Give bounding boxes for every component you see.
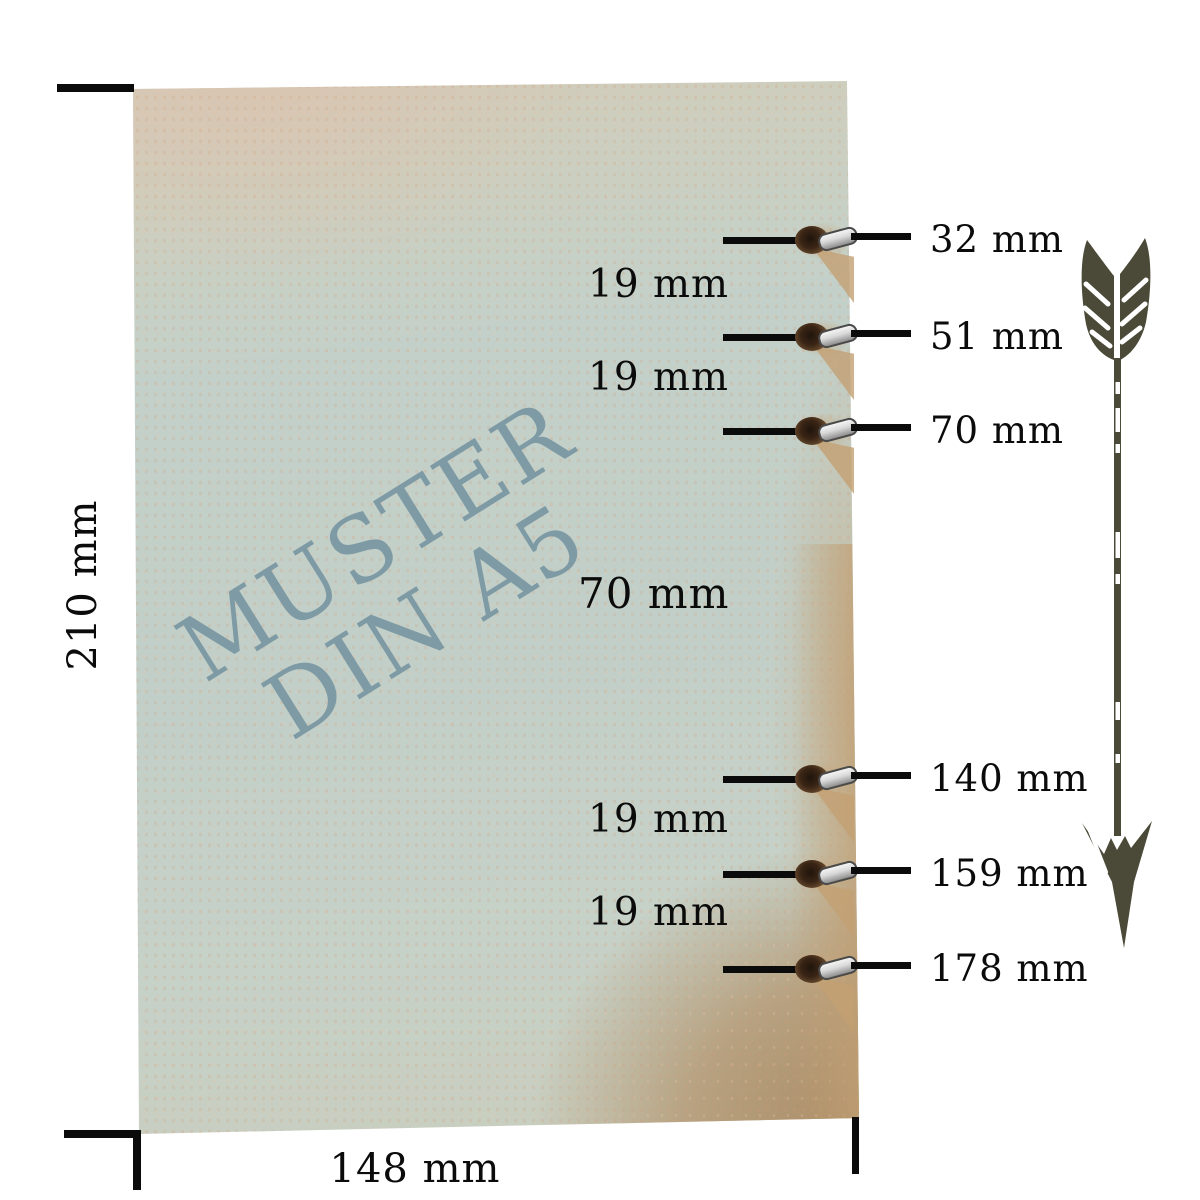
dimension-line-left	[723, 237, 801, 244]
dimension-line-right	[851, 233, 911, 240]
binding-hole-row: 178 mm	[0, 949, 1100, 989]
binding-hole-row: 70 mm	[0, 411, 1100, 451]
notebook-measurement-diagram: MUSTER DIN A5 210 mm 148 mm 32 mm 51 mm …	[0, 0, 1200, 1200]
dimension-line-left	[723, 966, 801, 973]
hole-spacing-label: 70 mm	[578, 568, 738, 620]
hole-spacing-label: 19 mm	[588, 887, 748, 939]
dimension-line-right	[851, 772, 911, 779]
top-left-corner-tick	[57, 84, 134, 92]
binding-hole-row: 51 mm	[0, 317, 1100, 357]
dimension-line-left	[723, 871, 801, 878]
dimension-line-right	[851, 330, 911, 337]
sheet-width-label: 148 mm	[300, 1143, 530, 1195]
dimension-line-right	[851, 962, 911, 969]
binding-hole-row: 140 mm	[0, 759, 1100, 799]
dimension-line-right	[851, 424, 911, 431]
sheet-height-label: 210 mm	[57, 475, 109, 695]
hole-distance-label: 32 mm	[930, 216, 1064, 264]
hole-spacing-label: 19 mm	[588, 794, 748, 846]
hole-distance-label: 51 mm	[930, 313, 1064, 361]
dimension-line-left	[723, 428, 801, 435]
bottom-left-corner-tick-vertical	[133, 1130, 141, 1190]
hole-distance-label: 70 mm	[930, 407, 1064, 455]
hole-spacing-label: 19 mm	[588, 259, 748, 311]
binding-hole-row: 159 mm	[0, 854, 1100, 894]
bottom-left-corner-tick-horizontal	[64, 1130, 140, 1138]
binding-hole-row: 32 mm	[0, 220, 1100, 260]
dimension-line-left	[723, 334, 801, 341]
dimension-line-right	[851, 867, 911, 874]
dimension-line-left	[723, 776, 801, 783]
bottom-right-corner-tick	[852, 1117, 859, 1174]
feathered-down-arrow-icon	[1056, 232, 1180, 962]
torn-edge-shading	[785, 544, 859, 1134]
hole-spacing-label: 19 mm	[588, 352, 748, 404]
